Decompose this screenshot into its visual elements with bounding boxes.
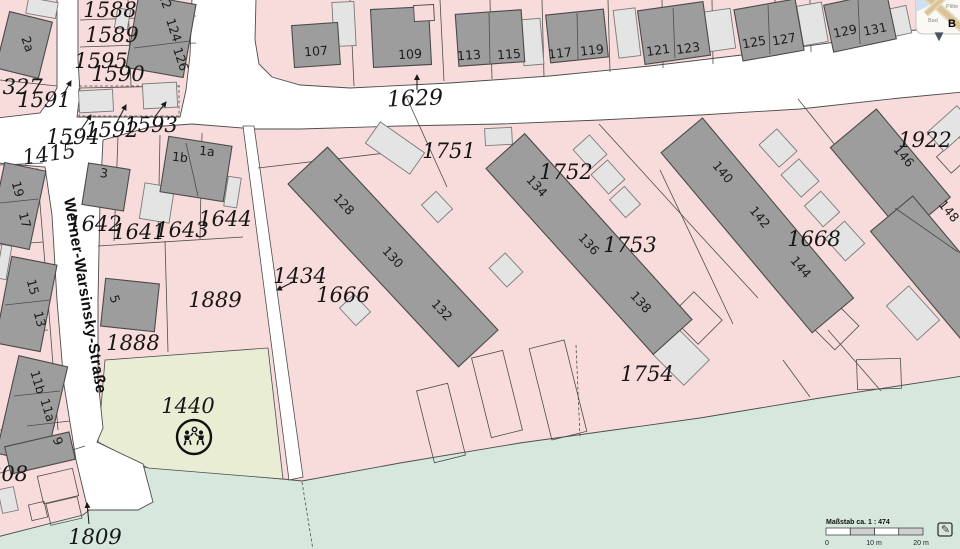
- house-label-1b: 1b: [171, 149, 188, 166]
- parcel-label-1589: 1589: [85, 23, 138, 47]
- building-109-notch: [414, 4, 435, 21]
- house-label-107: 107: [304, 43, 329, 60]
- parcel-label-1440: 1440: [161, 394, 214, 418]
- scale-tick-10: 10 m: [866, 540, 882, 547]
- house-label-115: 115: [497, 46, 522, 63]
- chevron-down-icon[interactable]: ▾: [934, 26, 943, 47]
- building-5: [101, 278, 160, 331]
- parcel-label-1751: 1751: [422, 139, 475, 163]
- parcel-label-1644: 1644: [198, 207, 251, 231]
- parcel-label-1590: 1590: [91, 62, 144, 86]
- parcel-label-1666: 1666: [316, 283, 369, 307]
- edit-icon: ✎: [941, 523, 950, 536]
- house-label-117: 117: [547, 44, 572, 61]
- building-1b-1a: [160, 136, 232, 201]
- house-label-109: 109: [398, 46, 423, 62]
- parcel-label-1754: 1754: [620, 362, 673, 386]
- inset-place-label: Bad: [928, 18, 938, 24]
- parcel-label-1593: 1593: [124, 113, 177, 137]
- cadastral-map: 1588 1589 1595 1590 1591 1327 1594 1592 …: [0, 0, 960, 549]
- parcel-label-1809: 1809: [68, 525, 121, 549]
- parcel-label-1752: 1752: [539, 160, 592, 184]
- inset-place-label: Plitte: [946, 4, 958, 10]
- house-label-113: 113: [457, 47, 482, 64]
- house-label-119: 119: [579, 41, 604, 58]
- parcel-label-1668: 1668: [787, 227, 840, 251]
- scale-tick-20: 20 m: [913, 540, 929, 547]
- parcel-label-1888: 1888: [106, 331, 159, 355]
- parcel-label-1889: 1889: [188, 288, 241, 312]
- parcel-label-1588: 1588: [83, 0, 136, 22]
- parcel-label-1327: 1327: [0, 75, 43, 99]
- scale-bar-segments: [826, 528, 923, 535]
- parcel-label-1753: 1753: [603, 233, 656, 257]
- scale-tick-0: 0: [825, 540, 829, 547]
- edit-button[interactable]: ✎: [938, 523, 952, 536]
- parcel-label-1629: 1629: [387, 86, 444, 113]
- parcel-label-808: 808: [0, 462, 28, 486]
- house-label-1a: 1a: [198, 143, 215, 160]
- scale-text: Maßstab ca. 1 : 474: [826, 519, 890, 526]
- inset-city-label: B: [948, 18, 956, 30]
